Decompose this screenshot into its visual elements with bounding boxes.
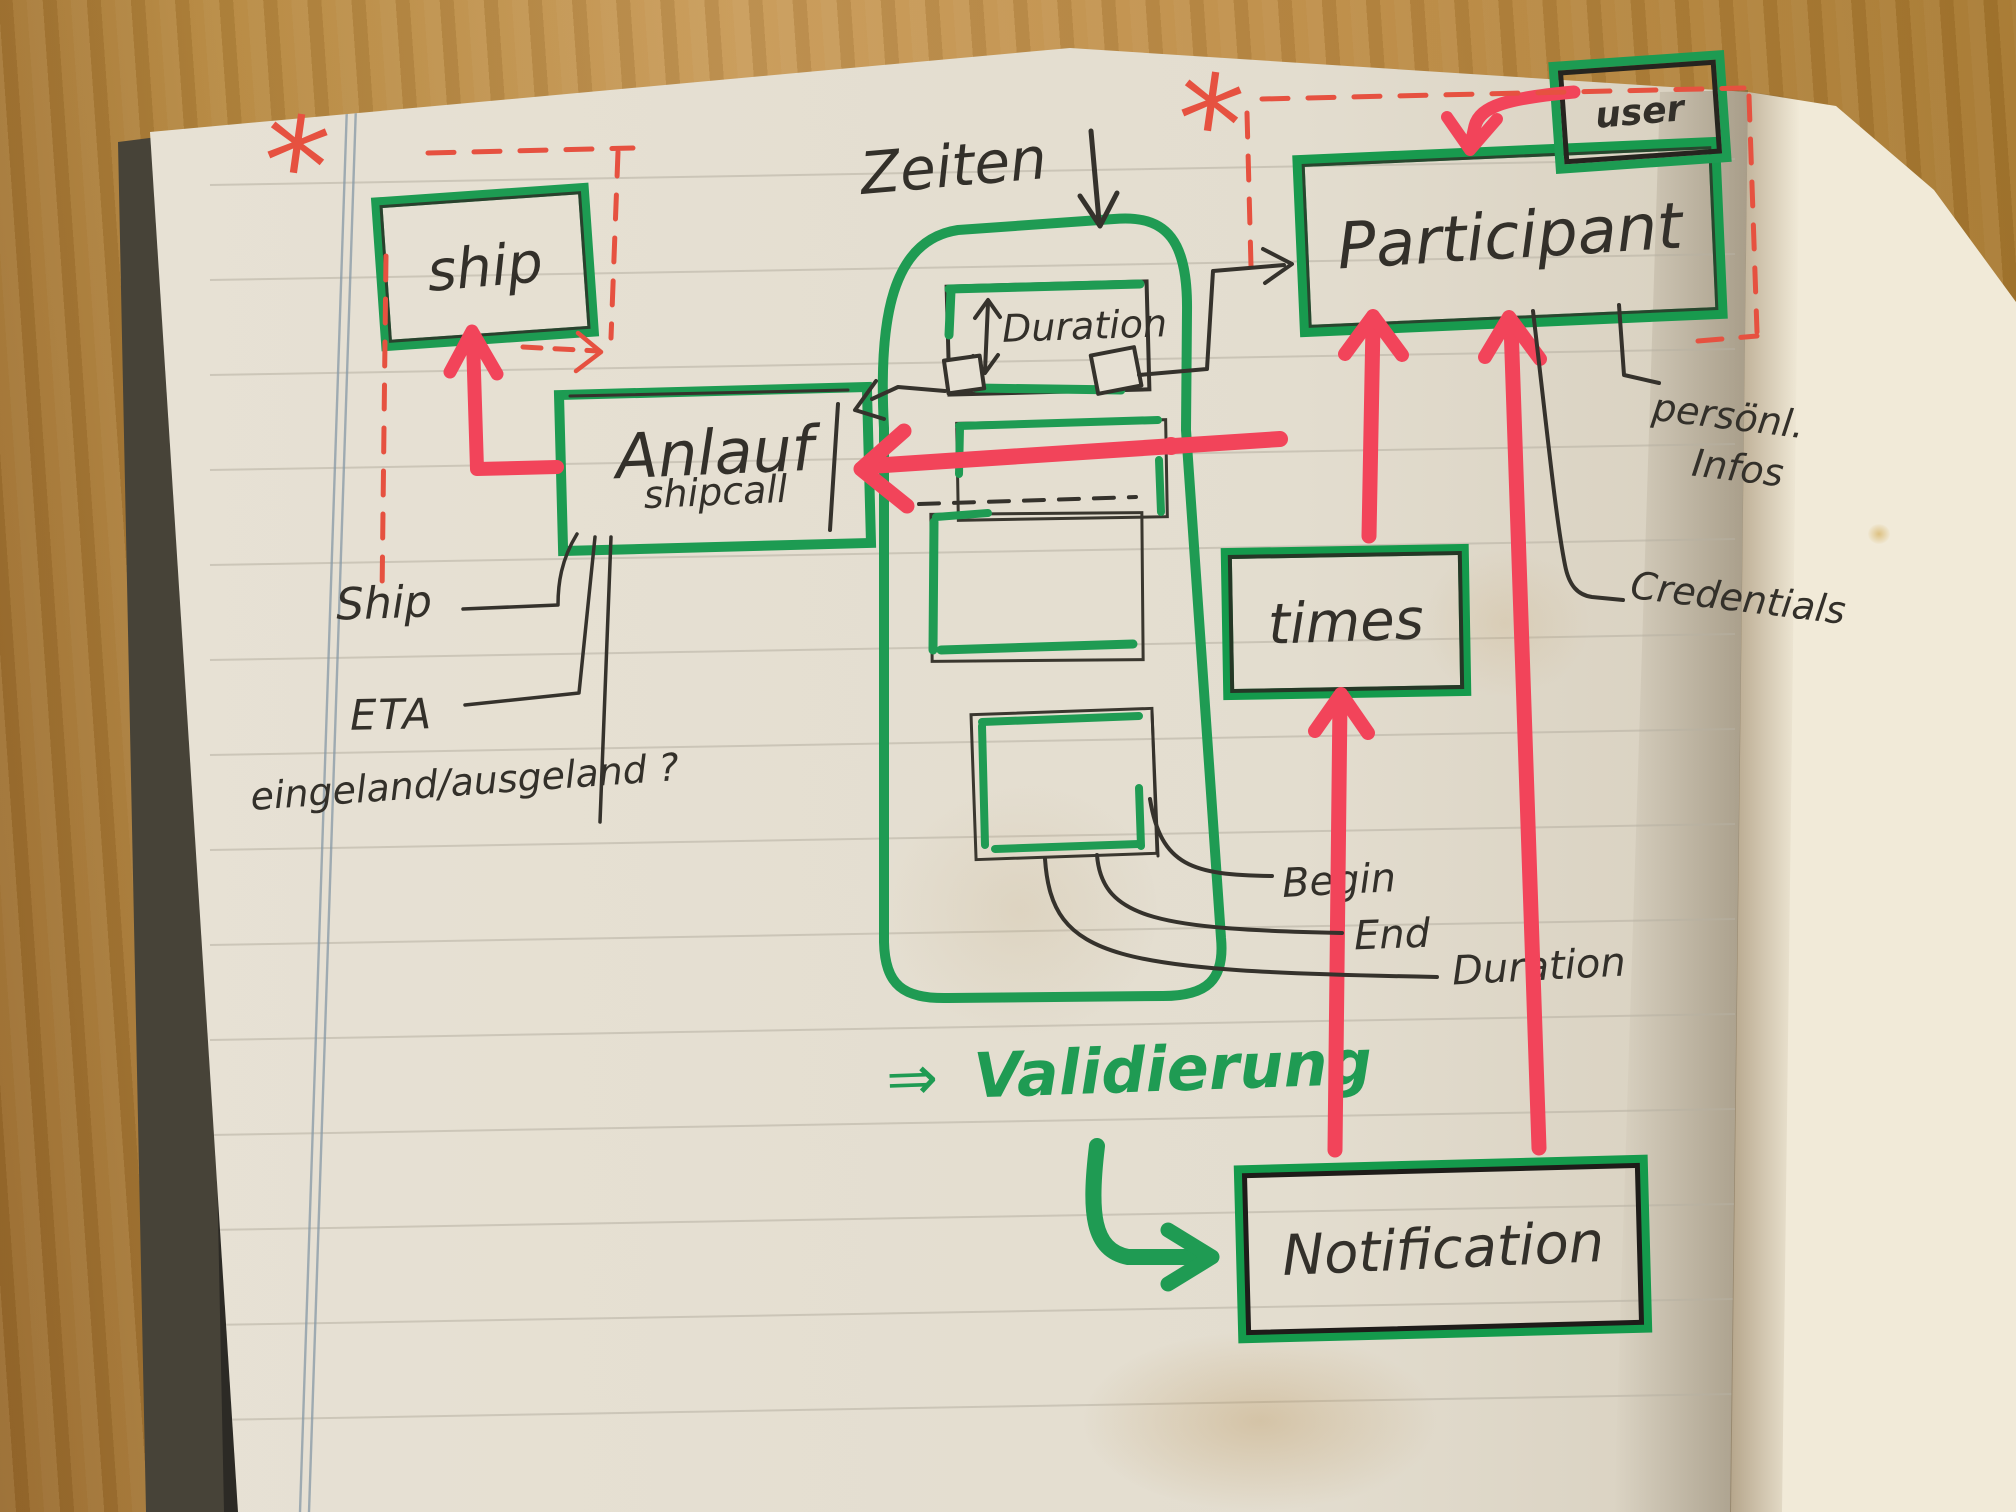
node-times: times xyxy=(1221,544,1472,700)
node-times-label: times xyxy=(1267,587,1425,657)
node-ship: ship xyxy=(371,183,599,352)
end-label: End xyxy=(1353,911,1431,960)
node-ship-label: ship xyxy=(424,230,545,305)
node-participant-label: Participant xyxy=(1335,190,1684,285)
node-anlauf: Anlauf shipcall xyxy=(554,382,876,556)
double-arrow-icon: ⇒ xyxy=(885,1041,939,1116)
node-notification: Notification xyxy=(1234,1155,1653,1344)
node-user: user xyxy=(1548,50,1731,174)
list-box-2 xyxy=(929,511,1144,663)
node-notification-label: Notification xyxy=(1281,1210,1606,1289)
begin-label: Begin xyxy=(1281,855,1397,907)
node-anlauf-sublabel: shipcall xyxy=(643,467,789,517)
validation-label: Validierung xyxy=(972,1026,1373,1113)
eta-label: ETA xyxy=(350,689,434,739)
duration-box-label: Duration xyxy=(1001,301,1167,351)
ship-attr-label: Ship xyxy=(335,576,433,630)
speck-right-page xyxy=(1868,524,1890,544)
duration-attr-label: Duration xyxy=(1451,939,1627,994)
list-box-1 xyxy=(955,418,1169,522)
node-participant: Participant xyxy=(1292,137,1728,337)
node-user-label: user xyxy=(1594,88,1686,137)
coffee-stain-large xyxy=(1080,1330,1440,1512)
list-box-3 xyxy=(969,707,1158,861)
